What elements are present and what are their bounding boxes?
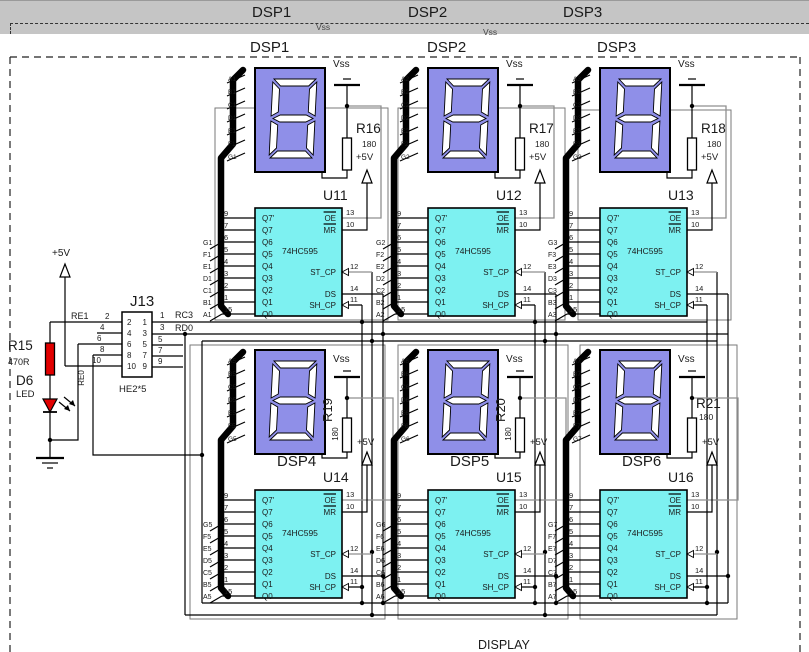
- seven-segment-F: [444, 82, 452, 116]
- segment-label: D1: [228, 115, 237, 122]
- resistor-ref: R19: [320, 398, 335, 422]
- connector-pin-number: 9: [158, 357, 163, 366]
- pin-number: 13: [346, 490, 354, 499]
- segment-label: F7: [573, 423, 581, 430]
- pin-name: Q3: [262, 556, 273, 565]
- junction-dot: [690, 104, 694, 108]
- segment-label: E6: [376, 546, 385, 553]
- segment-label: A6: [376, 594, 385, 601]
- pin-number: 9: [224, 491, 228, 500]
- plus5v-label: +5V: [529, 152, 547, 163]
- pin-number: 2: [397, 563, 401, 572]
- connector-pin-number: 6: [97, 334, 102, 343]
- pin-name: Q6: [262, 238, 273, 247]
- pin-number: 10: [346, 220, 354, 229]
- segment-label: D3: [573, 115, 582, 122]
- display-title: DSP2: [427, 39, 466, 56]
- seven-segment-D: [615, 433, 657, 440]
- seven-segment-D: [270, 433, 312, 440]
- pin-number: 11: [350, 295, 358, 304]
- clock-input-mark: [687, 269, 694, 276]
- pin-name: Q1: [607, 298, 618, 307]
- pin-name: OE: [324, 214, 336, 223]
- pin-number: 12: [523, 262, 531, 271]
- segment-label: A6: [401, 358, 409, 365]
- pin-name: Q1: [262, 298, 273, 307]
- seven-segment-G: [618, 115, 658, 122]
- segment-label: D2: [401, 115, 410, 122]
- resistor-ref: R18: [701, 121, 726, 136]
- pin-name: Q6: [435, 520, 446, 529]
- pin-number: 12: [523, 544, 531, 553]
- pin-name: Q5: [607, 532, 618, 541]
- pin-name: Q7': [435, 496, 448, 505]
- resistor-r20[interactable]: [516, 418, 525, 452]
- seven-segment-C: [307, 121, 315, 155]
- segment-label: B2: [401, 89, 409, 96]
- pin-name: Q2: [435, 286, 446, 295]
- resistor-r17[interactable]: [516, 138, 525, 170]
- segment-label: A2: [376, 312, 385, 319]
- clock-input-mark: [342, 302, 349, 309]
- connector-pin-number: 2: [127, 318, 132, 327]
- pin-name: OE: [324, 496, 336, 505]
- segment-label: F3: [573, 141, 581, 148]
- segment-label: B7: [548, 582, 557, 589]
- plus5v-arrow: [707, 170, 717, 183]
- pin-number: 9: [397, 491, 401, 500]
- connector-type: HE2*5: [119, 384, 146, 395]
- pin-number: 14: [523, 566, 531, 575]
- pin-name: Q6: [435, 238, 446, 247]
- resistor-value: 180: [331, 427, 340, 441]
- segment-label: C5: [228, 384, 237, 391]
- pin-number: 5: [569, 245, 573, 254]
- pin-name: OE: [497, 496, 509, 505]
- pin-name: MR: [324, 226, 337, 235]
- pin-name: Q7: [607, 508, 618, 517]
- pin-name: MR: [497, 226, 510, 235]
- plus5v-arrow: [362, 170, 372, 183]
- segment-label: E7: [548, 546, 557, 553]
- pin-number: 3: [397, 269, 401, 278]
- pin-number: 9: [397, 209, 401, 218]
- clock-input-mark: [515, 302, 522, 309]
- segment-label: D5: [203, 558, 212, 565]
- seven-segment-C: [480, 121, 488, 155]
- segment-label: C1: [228, 102, 237, 109]
- segment-label: B2: [376, 300, 385, 307]
- pin-name: Q7': [262, 496, 275, 505]
- pin-number: 9: [569, 209, 573, 218]
- segment-label: F3: [548, 252, 556, 259]
- junction-dot: [705, 601, 709, 605]
- junction-dot: [345, 104, 349, 108]
- pin-number: 14: [695, 284, 703, 293]
- pin-number: 11: [695, 577, 703, 586]
- pin-number: 11: [523, 577, 531, 586]
- segment-label: A3: [573, 76, 581, 83]
- display-title: DSP1: [250, 39, 289, 56]
- seven-segment-D: [615, 151, 657, 158]
- seven-segment-G: [273, 397, 313, 404]
- pin-name: Q0: [607, 310, 618, 319]
- segment-label: F2: [401, 141, 409, 148]
- segment-tap: [210, 596, 222, 603]
- resistor-ref: R20: [493, 398, 508, 422]
- plus5v-label: +5V: [52, 248, 70, 259]
- segment-label: B5: [203, 582, 212, 589]
- seven-segment-F: [616, 82, 624, 116]
- pin-name: Q1: [607, 580, 618, 589]
- junction-dot: [360, 320, 364, 324]
- pin-name: ST_CP: [483, 268, 509, 277]
- resistor-value: 180: [362, 139, 376, 149]
- segment-label: F7: [548, 534, 556, 541]
- connector-pin-number: 8: [100, 345, 105, 354]
- segment-label: C6: [376, 570, 385, 577]
- segment-label: E3: [573, 128, 581, 135]
- pin-number: 6: [397, 233, 401, 242]
- pin-number: 10: [519, 502, 527, 511]
- segment-label: F2: [376, 252, 384, 259]
- segment-label: F1: [203, 252, 211, 259]
- resistor-value: 180: [504, 427, 513, 441]
- pin-name: DS: [670, 290, 681, 299]
- seven-segment-D: [443, 433, 485, 440]
- pin-name: Q3: [607, 274, 618, 283]
- pin-name: Q2: [607, 568, 618, 577]
- pin-number: 5: [224, 245, 228, 254]
- segment-label: E5: [228, 410, 236, 417]
- display-title: DSP3: [597, 39, 636, 56]
- pin-number: 13: [519, 208, 527, 217]
- junction-dot: [554, 332, 558, 336]
- connector-ref: J13: [130, 293, 154, 310]
- segment-label: C1: [203, 288, 212, 295]
- pin-number: 13: [346, 208, 354, 217]
- pin-name: OE: [669, 214, 681, 223]
- pin-name: DS: [325, 290, 336, 299]
- pin-number: 10: [519, 220, 527, 229]
- seven-segment-A: [619, 79, 661, 86]
- connector-pin-number: 3: [160, 323, 165, 332]
- plus5v-label: +5V: [530, 437, 548, 448]
- pin-number: 1: [397, 293, 401, 302]
- junction-dot: [690, 396, 694, 400]
- pin-name: Q0: [435, 592, 446, 601]
- pin-number: 5: [569, 527, 573, 536]
- seven-segment-A: [274, 79, 316, 86]
- junction-dot: [533, 320, 537, 324]
- segment-label: E1: [203, 264, 212, 271]
- segment-label: E2: [376, 264, 385, 271]
- led-ref: D6: [16, 373, 33, 388]
- seven-segment-A: [447, 361, 489, 368]
- pin-name: Q4: [435, 262, 446, 271]
- plus5v-label: +5V: [702, 437, 720, 448]
- pin-number: 3: [569, 551, 573, 560]
- pin-name: Q7': [435, 214, 448, 223]
- resistor-value: 180: [535, 139, 549, 149]
- seven-segment-C: [652, 121, 660, 155]
- clock-input-mark: [342, 584, 349, 591]
- clock-input-mark: [342, 551, 349, 558]
- segment-label: A1: [228, 76, 236, 83]
- segment-label: D1: [203, 276, 212, 283]
- vss-label: Vss: [506, 59, 523, 70]
- junction-dot: [345, 396, 349, 400]
- seven-segment-C: [480, 403, 488, 437]
- seven-segment-C: [652, 403, 660, 437]
- plus5v-arrow: [707, 452, 717, 465]
- pin-number: 9: [569, 491, 573, 500]
- pin-number: 1: [569, 575, 573, 584]
- connector-pin-number: 2: [105, 312, 110, 321]
- junction-dot: [533, 601, 537, 605]
- resistor-r18[interactable]: [688, 138, 697, 170]
- pin-name: Q7': [607, 496, 620, 505]
- display-title: DSP6: [622, 453, 661, 470]
- pin-number: 13: [691, 490, 699, 499]
- connector-pin-number: 5: [143, 340, 148, 349]
- pin-number: 10: [346, 502, 354, 511]
- pin-number: 11: [523, 295, 531, 304]
- pin-number: 9: [224, 209, 228, 218]
- pin-number: 5: [397, 245, 401, 254]
- topbar-vss-label: Vss: [483, 27, 497, 37]
- topbar-dashed-border-left: [10, 23, 11, 34]
- pin-number: 11: [695, 295, 703, 304]
- pin-name: Q5: [262, 250, 273, 259]
- segment-label: G3: [573, 154, 582, 161]
- segment-label: C7: [573, 384, 582, 391]
- junction-dot: [543, 613, 547, 617]
- segment-label: G1: [203, 240, 212, 247]
- connector-pin-number: 3: [143, 329, 148, 338]
- pin-number: 2: [569, 563, 573, 572]
- display-title: DSP5: [450, 453, 489, 470]
- pin-number: 14: [350, 566, 358, 575]
- pin-name: Q5: [435, 532, 446, 541]
- segment-label: G1: [228, 154, 237, 161]
- seven-segment-F: [444, 364, 452, 398]
- segment-label: B6: [401, 371, 409, 378]
- junction-dot: [518, 104, 522, 108]
- resistor-r19[interactable]: [343, 418, 352, 452]
- plus5v-arrow: [535, 452, 545, 465]
- pin-number: 7: [224, 221, 228, 230]
- connector-pin-number: 4: [100, 323, 105, 332]
- pin-name: Q7: [435, 226, 446, 235]
- segment-label: G2: [376, 240, 385, 247]
- seven-segment-G: [273, 115, 313, 122]
- pin-number: 11: [350, 577, 358, 586]
- pin-number: 13: [691, 208, 699, 217]
- segment-label: F6: [401, 423, 409, 430]
- pin-number: 3: [397, 551, 401, 560]
- segment-label: A5: [203, 594, 212, 601]
- segment-label: B6: [376, 582, 385, 589]
- pin-number: 6: [569, 233, 573, 242]
- pin-number: 7: [224, 503, 228, 512]
- pin-name: Q2: [262, 286, 273, 295]
- chip-part-number: 74HC595: [282, 246, 318, 256]
- pin-number: 2: [569, 281, 573, 290]
- segment-label: D5: [228, 397, 237, 404]
- pin-name: Q4: [262, 544, 273, 553]
- seven-segment-F: [271, 364, 279, 398]
- connector-pin-number: 1: [160, 311, 165, 320]
- chip-part-number: 74HC595: [627, 528, 663, 538]
- seven-segment-C: [307, 403, 315, 437]
- pin-name: Q4: [435, 544, 446, 553]
- seven-segment-D: [270, 151, 312, 158]
- pin-number: 14: [523, 284, 531, 293]
- pin-name: Q6: [262, 520, 273, 529]
- connector-pin-number: 7: [143, 351, 148, 360]
- pin-number: 4: [397, 539, 401, 548]
- pin-number: 1: [397, 575, 401, 584]
- segment-label: E5: [203, 546, 212, 553]
- pin-name: ST_CP: [655, 550, 681, 559]
- pin-name: ST_CP: [310, 550, 336, 559]
- pin-number: 4: [569, 539, 573, 548]
- pin-name: DS: [498, 290, 509, 299]
- topbar-dsp3-label: DSP3: [563, 4, 602, 21]
- pin-name: Q3: [435, 556, 446, 565]
- connector-pin-number: 6: [127, 340, 132, 349]
- pin-name: DS: [670, 572, 681, 581]
- junction-dot: [360, 601, 364, 605]
- pin-number: 2: [224, 281, 228, 290]
- pin-number: 15: [569, 305, 577, 314]
- pin-name: Q0: [435, 310, 446, 319]
- pin-name: Q7': [262, 214, 275, 223]
- resistor-ref: R21: [696, 396, 721, 411]
- segment-tap: [383, 314, 395, 321]
- segment-tap: [555, 596, 567, 603]
- pin-number: 5: [397, 527, 401, 536]
- pin-name: Q2: [262, 568, 273, 577]
- pin-number: 12: [695, 262, 703, 271]
- connector-pin-number: 7: [158, 346, 163, 355]
- segment-label: D7: [548, 558, 557, 565]
- pin-number: 15: [224, 587, 232, 596]
- resistor-value: 470R: [8, 357, 30, 367]
- pin-name: MR: [669, 226, 682, 235]
- clock-input-mark: [687, 584, 694, 591]
- segment-label: G6: [376, 522, 385, 529]
- junction-dot: [518, 396, 522, 400]
- pin-name: Q1: [435, 580, 446, 589]
- pin-number: 14: [695, 566, 703, 575]
- pin-name: Q0: [262, 592, 273, 601]
- segment-label: B3: [573, 89, 581, 96]
- connector-pin-number: 10: [127, 362, 136, 371]
- pin-name: Q6: [607, 520, 618, 529]
- pin-number: 15: [397, 305, 405, 314]
- pin-name: OE: [497, 214, 509, 223]
- pin-number: 2: [224, 563, 228, 572]
- pin-number: 6: [224, 515, 228, 524]
- segment-label: G3: [548, 240, 557, 247]
- segment-label: D3: [548, 276, 557, 283]
- pin-number: 2: [397, 281, 401, 290]
- segment-label: B3: [548, 300, 557, 307]
- connector-pin-number: 8: [127, 351, 132, 360]
- seven-segment-G: [446, 115, 486, 122]
- chip-ref: U16: [668, 469, 694, 485]
- led-d6[interactable]: [43, 399, 57, 412]
- segment-label: B7: [573, 371, 581, 378]
- pin-name: Q0: [607, 592, 618, 601]
- seven-segment-A: [274, 361, 316, 368]
- pin-number: 15: [224, 305, 232, 314]
- pin-name: Q7: [262, 226, 273, 235]
- pin-name: ST_CP: [655, 268, 681, 277]
- plus5v-label: +5V: [357, 437, 375, 448]
- pin-number: 1: [224, 293, 228, 302]
- schematic-canvas: DSP1DSP2DSP3A1B1C1D1E1F1G1VssR16180+5VU1…: [0, 0, 809, 652]
- segment-label: E3: [548, 264, 557, 271]
- resistor-r16[interactable]: [343, 138, 352, 170]
- segment-label: A7: [548, 594, 557, 601]
- led-type: LED: [16, 389, 35, 400]
- pin-name: Q0: [262, 310, 273, 319]
- pin-name: Q7: [435, 508, 446, 517]
- pin-name: Q5: [262, 532, 273, 541]
- pin-number: 1: [224, 575, 228, 584]
- junction-dot: [543, 339, 547, 343]
- pin-number: 4: [224, 539, 228, 548]
- pin-name: SH_CP: [309, 301, 336, 310]
- segment-label: C7: [548, 570, 557, 577]
- arrowhead: [64, 405, 70, 411]
- segment-label: A3: [548, 312, 557, 319]
- connector-pin-number: 5: [158, 335, 163, 344]
- segment-label: E1: [228, 128, 236, 135]
- resistor-r15[interactable]: [46, 343, 55, 375]
- pin-name: Q5: [607, 250, 618, 259]
- pin-number: 14: [350, 284, 358, 293]
- segment-label: C2: [376, 288, 385, 295]
- chip-part-number: 74HC595: [627, 246, 663, 256]
- pin-number: 5: [224, 527, 228, 536]
- pin-name: OE: [669, 496, 681, 505]
- pin-name: ST_CP: [310, 268, 336, 277]
- junction-dot: [370, 339, 374, 343]
- resistor-value: 180: [707, 139, 721, 149]
- connector-pin-number: 9: [143, 362, 148, 371]
- pin-number: 6: [224, 233, 228, 242]
- resistor-r21[interactable]: [688, 418, 697, 452]
- plus5v-label: +5V: [356, 152, 374, 163]
- segment-label: D7: [573, 397, 582, 404]
- segment-label: G6: [401, 436, 410, 443]
- chip-part-number: 74HC595: [282, 528, 318, 538]
- pin-number: 6: [397, 515, 401, 524]
- segment-label: B1: [203, 300, 212, 307]
- pin-number: 10: [691, 502, 699, 511]
- segment-label: C2: [401, 102, 410, 109]
- resistor-ref: R17: [529, 121, 554, 136]
- vss-label: Vss: [333, 59, 350, 70]
- segment-label: A1: [203, 312, 212, 319]
- display-title: DSP4: [277, 453, 316, 470]
- pin-name: SH_CP: [654, 583, 681, 592]
- sheet-title: DISPLAY: [478, 638, 530, 652]
